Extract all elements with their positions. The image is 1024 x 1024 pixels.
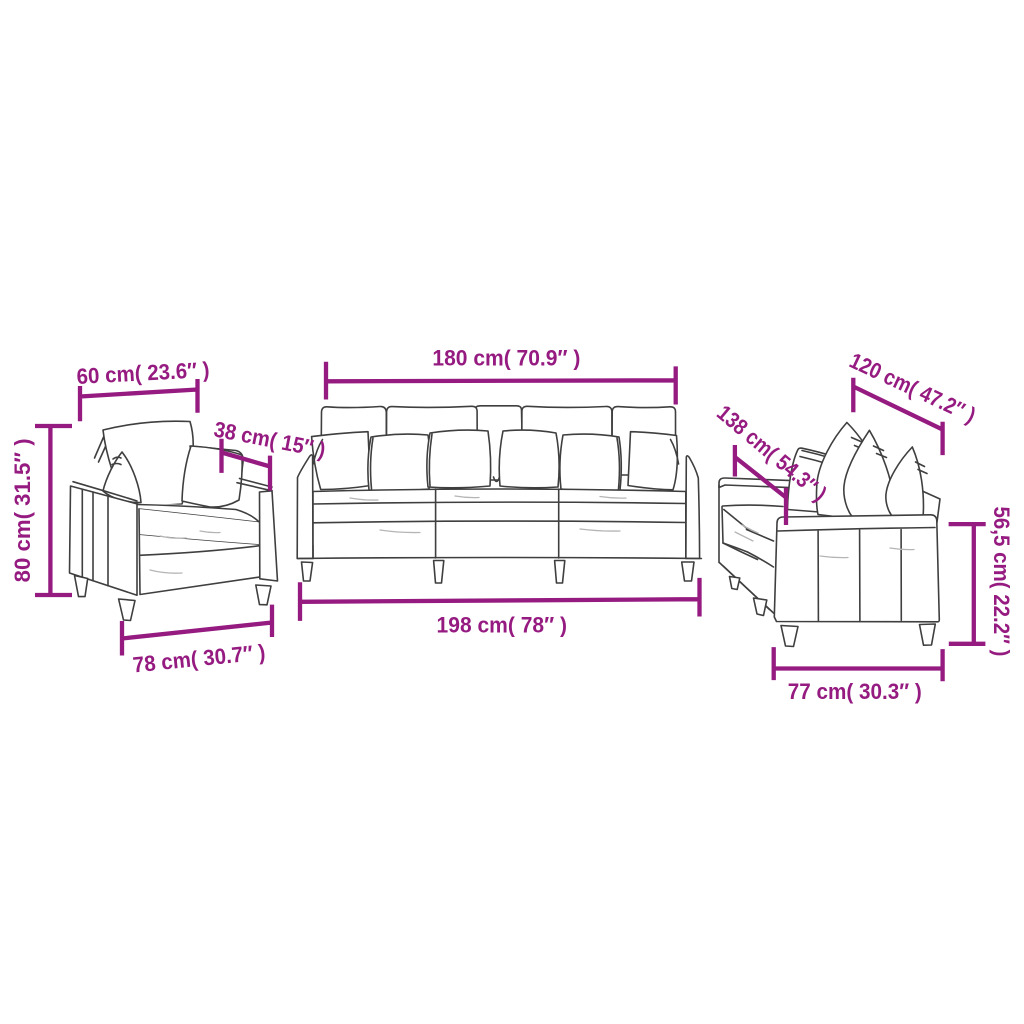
svg-text:80 cm( 31.5″ ): 80 cm( 31.5″ )	[10, 438, 35, 582]
svg-text:56,5 cm( 22.2″ ): 56,5 cm( 22.2″ )	[989, 507, 1014, 657]
svg-text:180 cm( 70.9″ ): 180 cm( 70.9″ )	[432, 346, 580, 371]
svg-text:198 cm( 78″ ): 198 cm( 78″ )	[437, 613, 568, 638]
svg-text:77 cm( 30.3″ ): 77 cm( 30.3″ )	[788, 679, 922, 704]
